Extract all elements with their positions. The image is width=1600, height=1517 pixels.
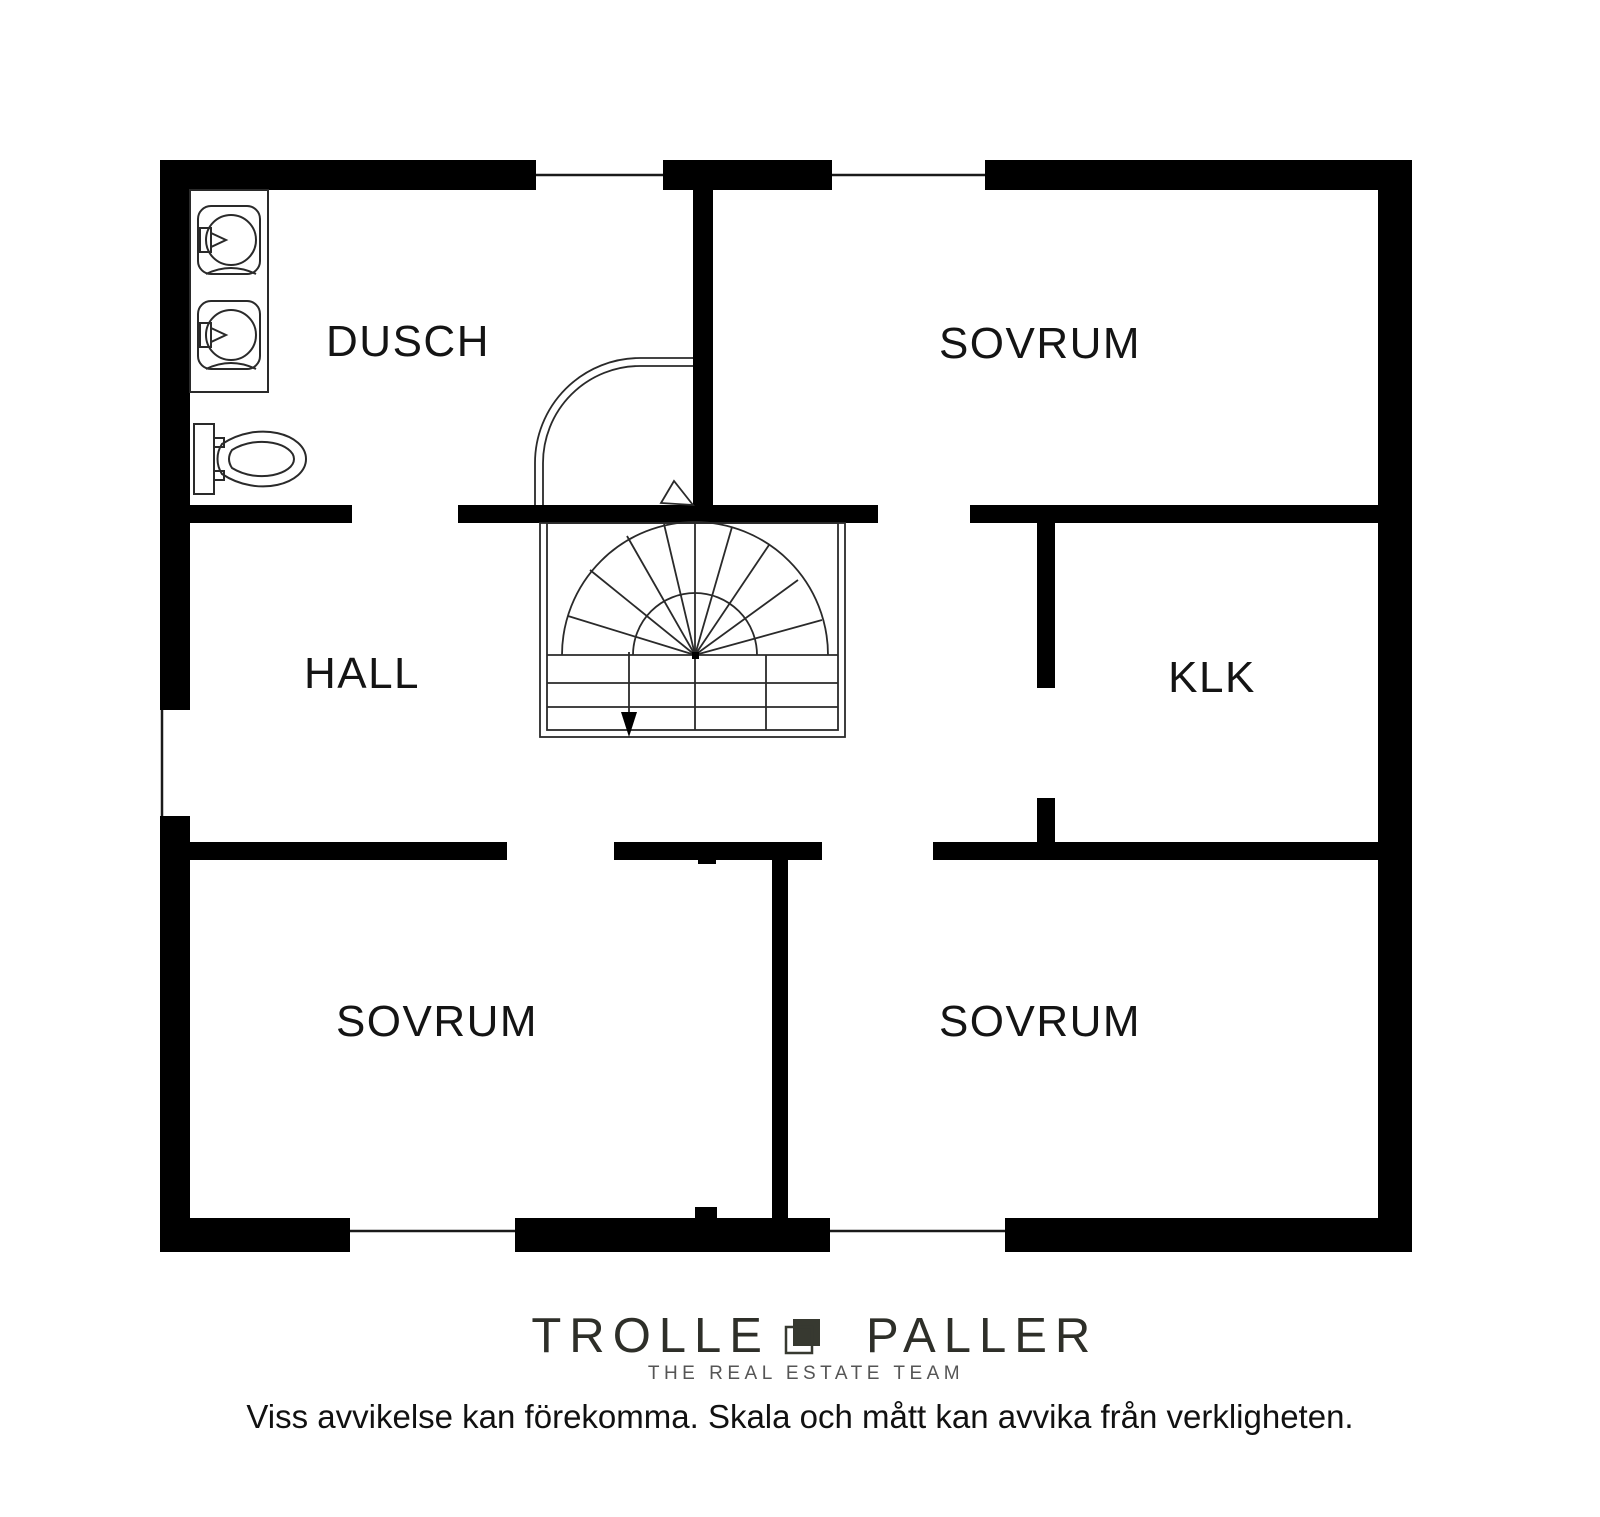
wall-sovrumne-bottom [970,505,1378,523]
wall-sovrum-divider [772,860,788,1218]
room-label-dusch: DUSCH [326,317,490,366]
floor-plan-drawing: DUSCH SOVRUM HALL KLK SOVRUM SOVRUM TROL… [0,0,1600,1517]
floor-plan-page: DUSCH SOVRUM HALL KLK SOVRUM SOVRUM TROL… [0,0,1600,1517]
toilet-bowl-outer [218,432,307,487]
wall-mid-1 [190,842,507,860]
room-label-sovrum-ne: SOVRUM [939,319,1141,368]
wall-left-lower [160,816,190,1252]
stair-box-outer [540,523,845,737]
brand-name-right: PALLER [866,1309,1098,1363]
toilet-bowl-inner [229,442,294,476]
wall-bottom-2 [515,1218,830,1252]
wall-top-3 [985,160,1412,190]
sink-basin [198,206,260,274]
stair-box-inner [547,523,838,730]
windows [162,175,1005,1231]
door-arc-outer [535,358,693,505]
wall-bottom-1 [160,1218,350,1252]
stair-radial-treads [568,523,822,655]
sink-faucet-spout [211,328,226,342]
sink-faucet-spout [211,233,226,247]
stair-newel-post [692,652,699,659]
brand-tagline: THE REAL ESTATE TEAM [648,1363,964,1384]
disclaimer-text: Viss avvikelse kan förekomma. Skala och … [246,1398,1353,1435]
wall-dusch-sovrum [693,190,713,523]
door-swing-arc [535,358,693,505]
bathroom-fixtures [190,190,306,494]
sink-basin [198,301,260,369]
door-leaf-triangle [661,481,693,505]
room-label-sovrum-sw: SOVRUM [336,997,538,1046]
wall-top-1 [160,160,536,190]
wall-stair-top [458,505,878,523]
wall-left-upper [160,160,190,710]
sink-bowl [206,310,256,360]
wall-right [1378,160,1412,1252]
wall-top-2 [663,160,832,190]
sink-icon [198,206,260,274]
room-label-sovrum-se: SOVRUM [939,997,1141,1046]
wall-mid-door-stub [698,858,716,864]
wall-mid-2 [614,842,822,860]
down-arrow-icon [621,712,637,737]
sink-bowl [206,215,256,265]
wall-mid-3 [933,842,1378,860]
brand-footer: TROLLE PALLER THE REAL ESTATE TEAM Viss … [246,1309,1353,1435]
wall-bottom-door-stub [695,1207,717,1219]
brand-name-left: TROLLE [531,1309,770,1363]
wall-bath-bottom [190,505,352,523]
brand-logo-icon [786,1319,820,1353]
logo-filled-square [793,1319,820,1346]
spiral-stair [540,522,845,737]
vanity-counter [190,190,268,392]
door-arc-inner [543,366,693,505]
wall-bottom-3 [1005,1218,1412,1252]
wall-klk-lower [1037,798,1055,844]
room-label-hall: HALL [304,649,420,698]
wall-klk-upper [1037,523,1055,688]
sink-icon [198,301,260,369]
toilet-tank [194,424,214,494]
room-label-klk: KLK [1168,653,1256,702]
toilet-icon [194,424,306,494]
